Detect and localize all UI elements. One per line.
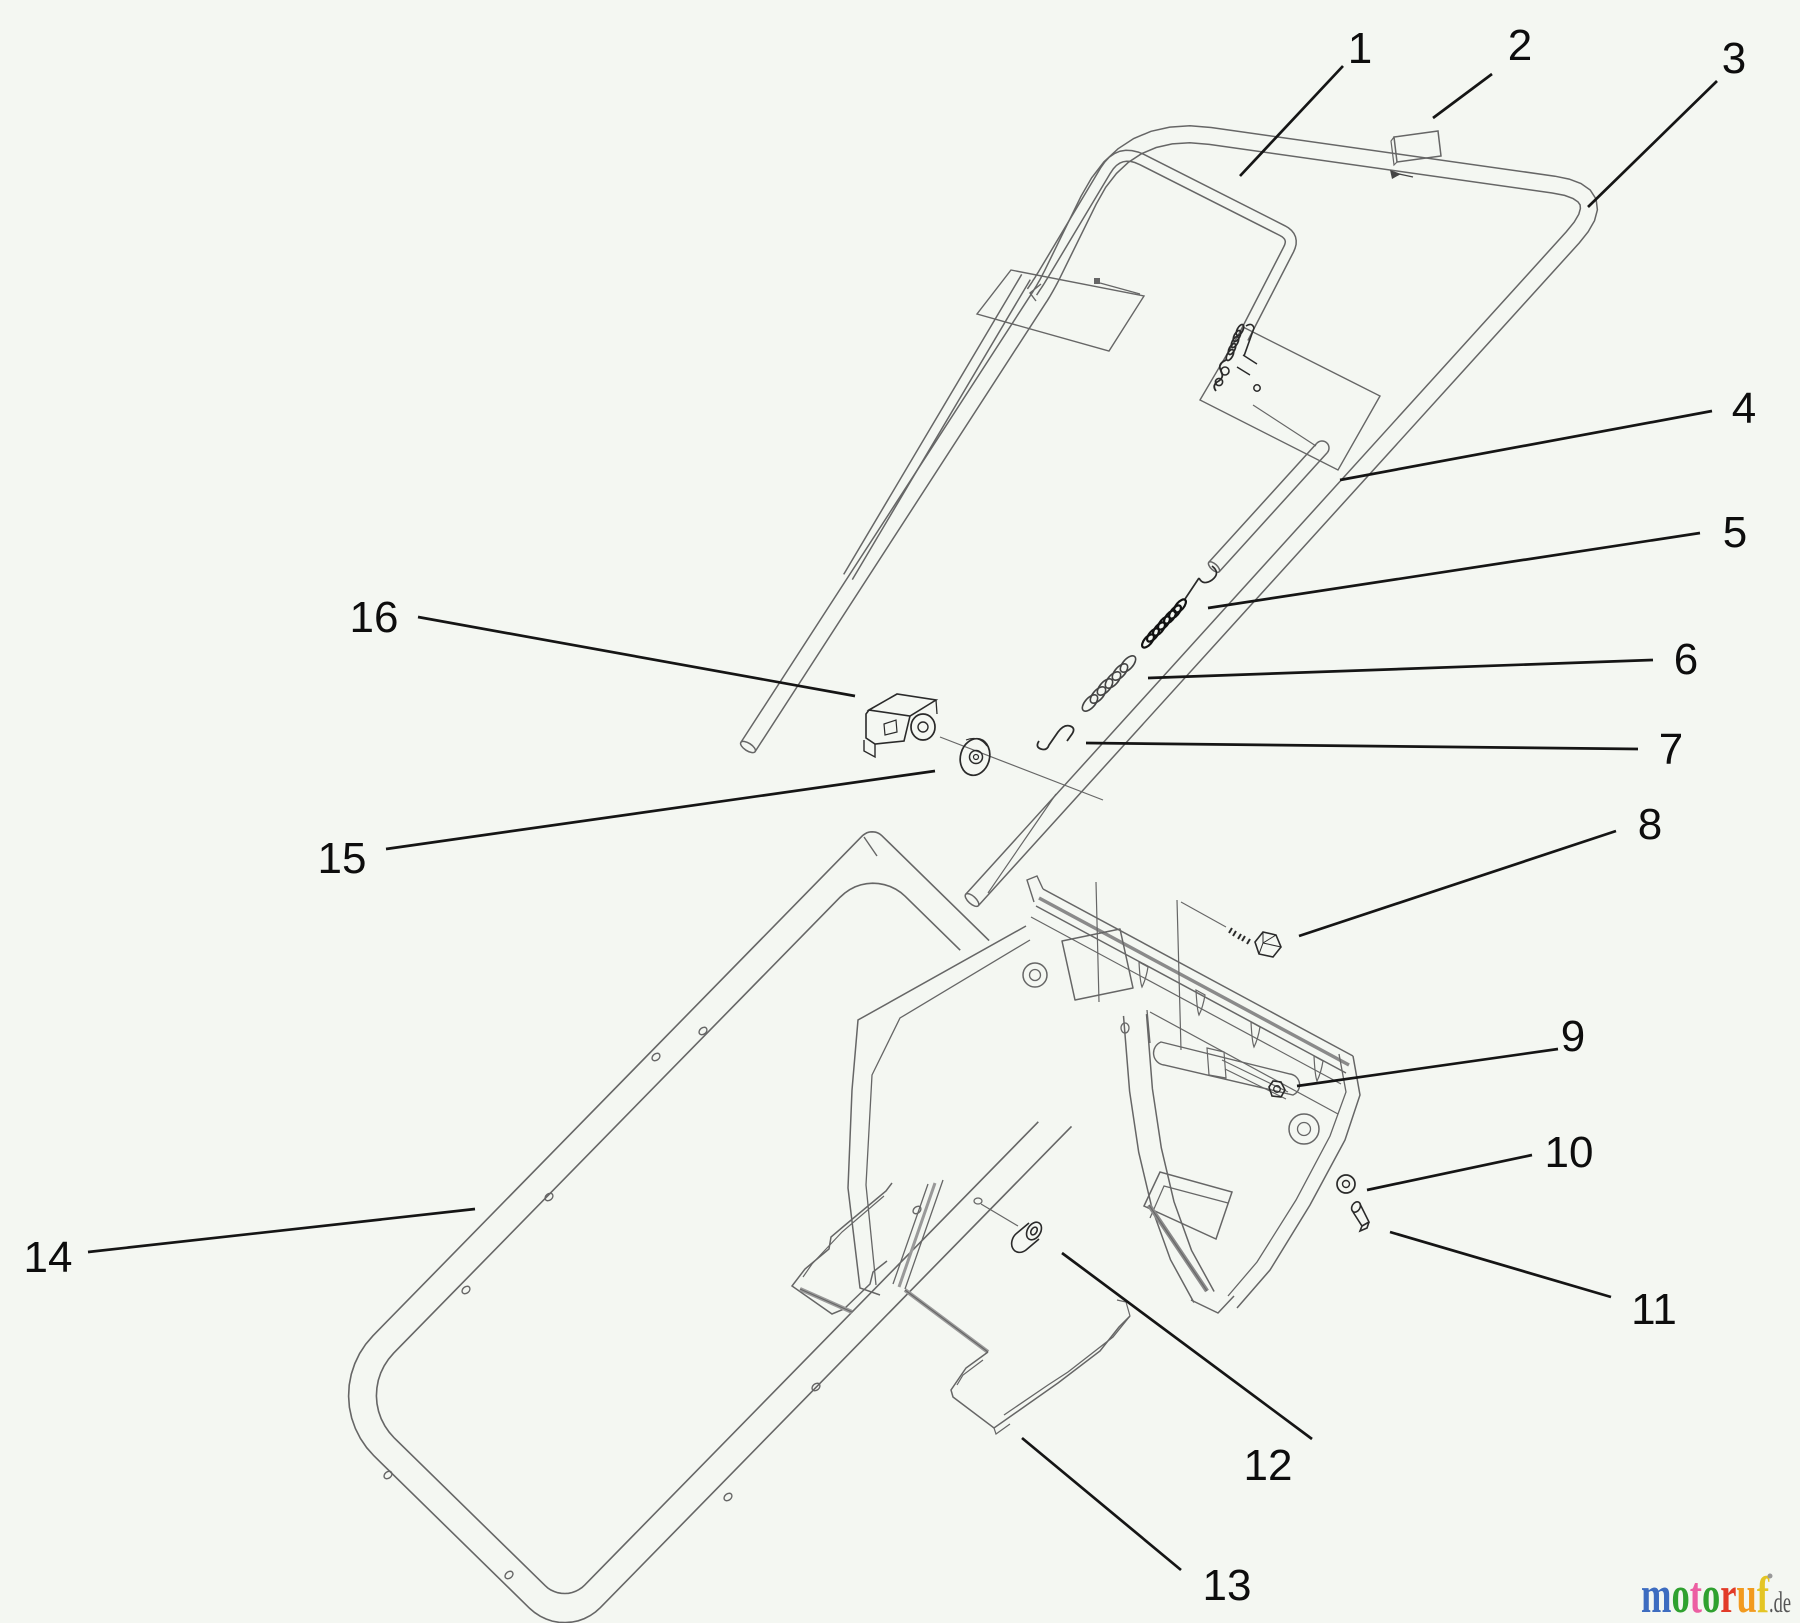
svg-text:12: 12: [1244, 1441, 1293, 1490]
svg-text:1: 1: [1348, 24, 1372, 73]
svg-text:5: 5: [1723, 508, 1747, 557]
svg-text:14: 14: [24, 1233, 73, 1282]
svg-text:7: 7: [1659, 725, 1683, 774]
svg-text:.de: .de: [1769, 1586, 1791, 1619]
svg-text:8: 8: [1638, 800, 1662, 849]
svg-text:6: 6: [1674, 635, 1698, 684]
svg-text:10: 10: [1545, 1128, 1594, 1177]
svg-text:motoruf: motoruf: [1641, 1567, 1769, 1623]
svg-text:16: 16: [350, 593, 399, 642]
svg-text:15: 15: [318, 834, 367, 883]
svg-text:13: 13: [1203, 1561, 1252, 1610]
svg-text:4: 4: [1732, 384, 1756, 433]
svg-text:9: 9: [1561, 1012, 1585, 1061]
svg-text:2: 2: [1508, 21, 1532, 70]
svg-text:3: 3: [1722, 34, 1746, 83]
svg-text:11: 11: [1631, 1285, 1677, 1334]
